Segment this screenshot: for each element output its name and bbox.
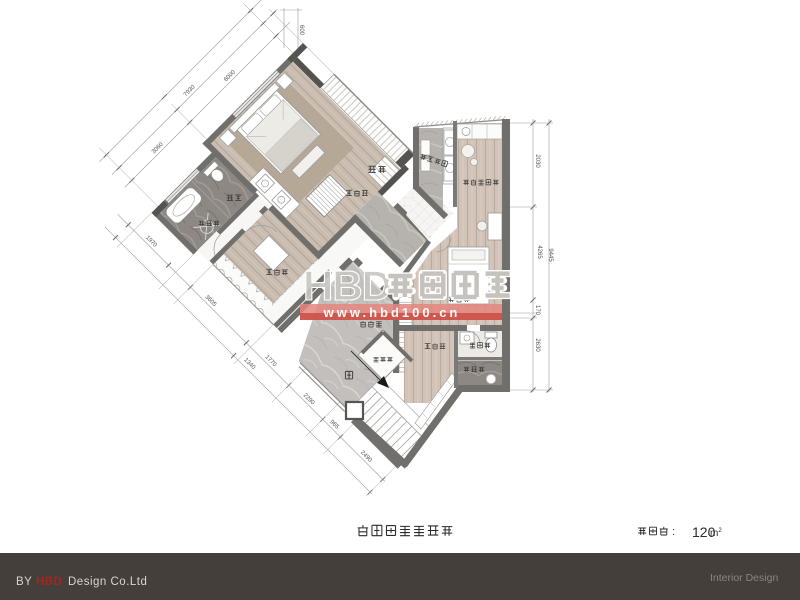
svg-text:4265: 4265 [536,245,542,259]
svg-text:170: 170 [534,305,540,316]
svg-text:Design Co.Ltd: Design Co.Ltd [68,576,147,588]
svg-text:2630: 2630 [534,338,540,352]
svg-text:HBD: HBD [303,262,391,309]
svg-text::: : [672,526,675,538]
svg-text:HBD: HBD [36,576,62,588]
svg-text:9445: 9445 [547,248,553,262]
svg-text:www.hbd100.cn: www.hbd100.cn [323,305,461,320]
svg-text:600: 600 [298,25,304,36]
svg-text:BY: BY [16,576,32,588]
svg-text:2030: 2030 [534,154,540,168]
svg-text:Interior Design: Interior Design [710,572,778,584]
